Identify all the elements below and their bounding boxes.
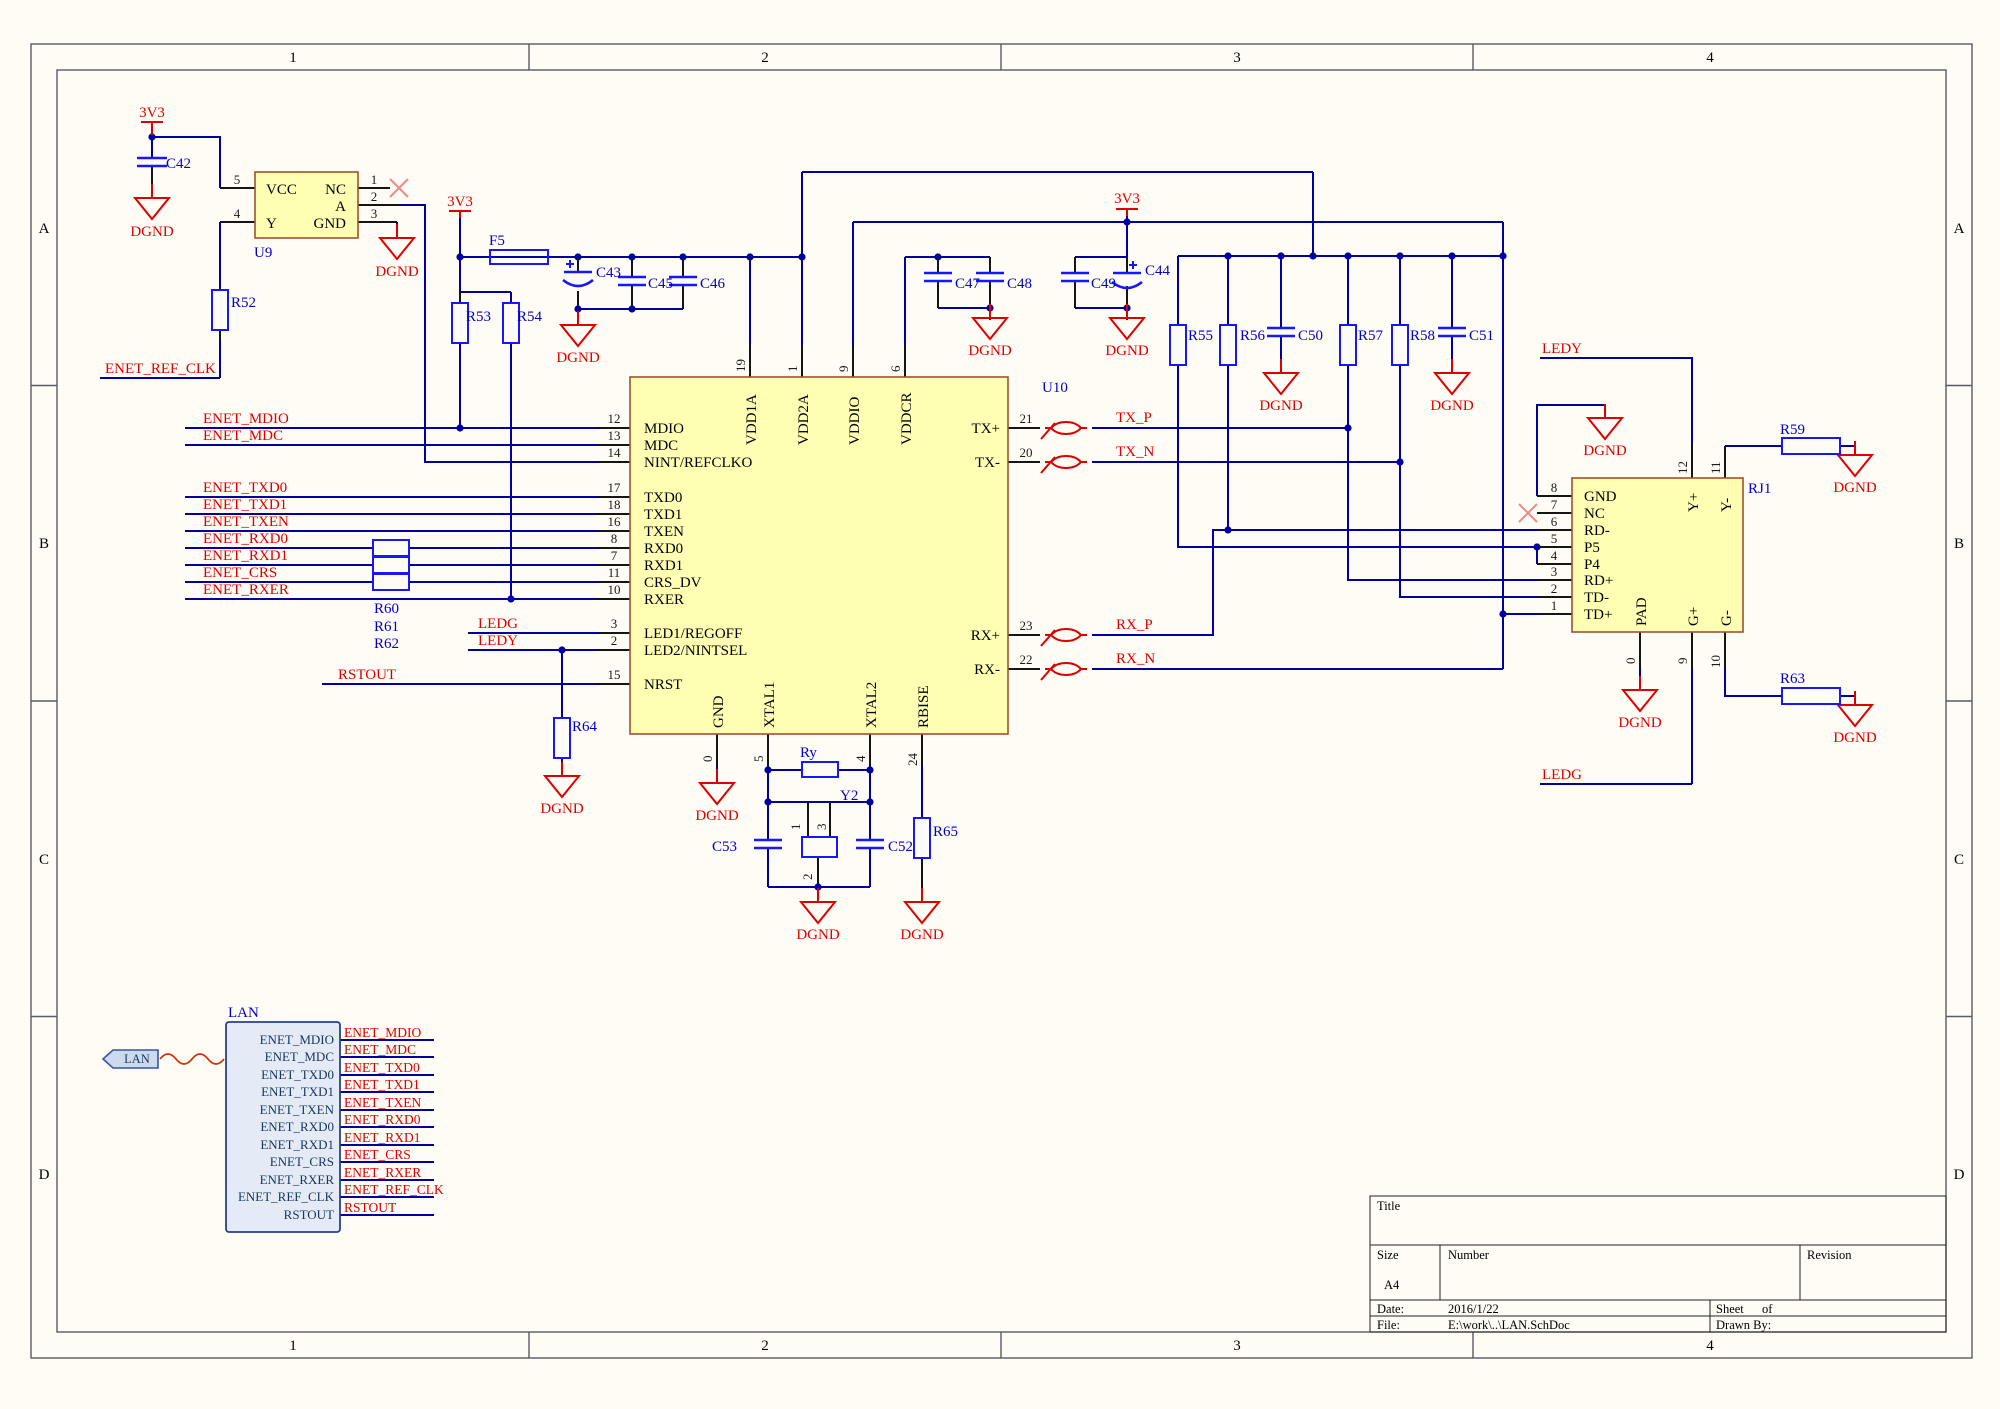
net-label-enet-rxd1: ENET_RXD1 bbox=[203, 548, 288, 564]
pin-name: TD- bbox=[1584, 590, 1609, 606]
schematic-sheet: 1 2 3 4 1 2 3 4 A B C D A B C D bbox=[0, 0, 2000, 1409]
pin-number: 12 bbox=[608, 411, 621, 426]
3v3-symbol bbox=[449, 211, 471, 218]
refdes: Y2 bbox=[840, 788, 858, 804]
port-label: LAN bbox=[124, 1052, 150, 1066]
pin-number: 0 bbox=[700, 756, 715, 763]
pin-name: VDDCR bbox=[899, 392, 915, 445]
pin-number: 1 bbox=[788, 824, 803, 831]
drawn-by-label: Drawn By: bbox=[1716, 1318, 1771, 1332]
zone-label: A bbox=[1954, 221, 1965, 237]
pin-name: TX+ bbox=[972, 421, 1000, 437]
net-label-ledg: LEDG bbox=[1542, 767, 1582, 783]
no-connect-icon bbox=[1519, 504, 1537, 522]
refdes: U10 bbox=[1042, 380, 1068, 396]
dgnd-symbol bbox=[973, 304, 1007, 339]
refdes: Ry bbox=[800, 745, 817, 761]
dgnd-symbol bbox=[905, 888, 939, 923]
refdes: C43 bbox=[596, 265, 621, 281]
harness-entry[interactable]: ENET_MDC bbox=[265, 1049, 334, 1064]
power-label-dgnd: DGND bbox=[1430, 398, 1473, 414]
zone-label: D bbox=[1954, 1167, 1965, 1183]
net-label: ENET_RXER bbox=[344, 1165, 421, 1180]
pin-number: 18 bbox=[608, 497, 621, 512]
size-label: Size bbox=[1377, 1248, 1399, 1262]
date-value: 2016/1/22 bbox=[1448, 1302, 1499, 1316]
zone-label: A bbox=[39, 221, 50, 237]
net-label-tx-n: TX_N bbox=[1116, 444, 1154, 460]
zone-label: 2 bbox=[761, 50, 769, 66]
pin-name: NINT/REFCLKO bbox=[644, 455, 753, 471]
net-label: ENET_RXD1 bbox=[344, 1130, 421, 1145]
harness-entry[interactable]: ENET_TXD0 bbox=[261, 1067, 334, 1082]
pin-name: RXD0 bbox=[644, 541, 683, 557]
net-label-ledy: LEDY bbox=[478, 633, 518, 649]
refdes: C45 bbox=[648, 276, 673, 292]
power-label-3v3: 3V3 bbox=[1114, 191, 1140, 207]
number-label: Number bbox=[1448, 1248, 1490, 1262]
pin-number: 10 bbox=[1708, 655, 1723, 668]
pin-number: 7 bbox=[1551, 497, 1558, 512]
pin-number: 5 bbox=[1551, 531, 1558, 546]
pin-name: PAD bbox=[1634, 597, 1650, 626]
pin-name: TXEN bbox=[644, 524, 684, 540]
pin-number: 20 bbox=[1020, 445, 1033, 460]
dgnd-symbol bbox=[1623, 676, 1657, 711]
diff-pair-icon bbox=[1041, 663, 1087, 680]
power-label-3v3: 3V3 bbox=[447, 194, 473, 210]
net-label: ENET_TXD1 bbox=[344, 1077, 420, 1092]
refdes: R63 bbox=[1780, 671, 1805, 687]
pin-name: G- bbox=[1719, 610, 1735, 626]
pin-number: 1 bbox=[371, 172, 378, 187]
harness-entry[interactable]: ENET_RXD0 bbox=[260, 1119, 334, 1134]
pin-name: NC bbox=[1584, 506, 1605, 522]
harness-connector bbox=[160, 1054, 224, 1064]
pin-name: GND bbox=[711, 695, 727, 728]
zone-label: D bbox=[39, 1167, 50, 1183]
pin-name: XTAL1 bbox=[762, 682, 778, 728]
refdes: C50 bbox=[1298, 328, 1323, 344]
pin-name: TXD1 bbox=[644, 507, 682, 523]
pin-number: 1 bbox=[785, 366, 800, 373]
pin-number: 11 bbox=[1708, 461, 1723, 474]
harness-entry[interactable]: ENET_REF_CLK bbox=[238, 1189, 335, 1204]
pin-name: G+ bbox=[1686, 607, 1702, 626]
pin-name: VDD1A bbox=[744, 394, 760, 445]
refdes: F5 bbox=[489, 233, 505, 249]
refdes: RJ1 bbox=[1748, 481, 1771, 497]
net-label-enet-txen: ENET_TXEN bbox=[203, 514, 289, 530]
refdes: C48 bbox=[1007, 276, 1032, 292]
pin-number: 22 bbox=[1020, 652, 1033, 667]
pin-number: 2 bbox=[611, 633, 618, 648]
pin-name: RX- bbox=[974, 662, 1000, 678]
dgnd-symbol bbox=[380, 224, 414, 259]
pin-number: 3 bbox=[611, 616, 618, 631]
pin-number: 3 bbox=[1551, 564, 1558, 579]
power-label-dgnd: DGND bbox=[540, 801, 583, 817]
power-label-dgnd: DGND bbox=[556, 350, 599, 366]
harness-entry[interactable]: ENET_TXEN bbox=[260, 1102, 335, 1117]
pin-name: RXER bbox=[644, 592, 684, 608]
harness-entry[interactable]: RSTOUT bbox=[284, 1207, 334, 1222]
refdes: R52 bbox=[231, 295, 256, 311]
net-label-tx-p: TX_P bbox=[1116, 410, 1152, 426]
pin-name: TX- bbox=[975, 455, 1000, 471]
pin-number: 10 bbox=[608, 582, 621, 597]
pin-number: 4 bbox=[853, 755, 868, 762]
refdes: C52 bbox=[888, 839, 913, 855]
net-label-rx-p: RX_P bbox=[1116, 617, 1153, 633]
pin-name: VDD2A bbox=[796, 394, 812, 445]
title-label: Title bbox=[1377, 1199, 1401, 1213]
zone-label: 3 bbox=[1233, 50, 1241, 66]
pin-number: 17 bbox=[608, 480, 622, 495]
size-value: A4 bbox=[1384, 1278, 1400, 1292]
dgnd-symbol bbox=[561, 311, 595, 346]
power-label-dgnd: DGND bbox=[1105, 343, 1148, 359]
zone-label: C bbox=[39, 852, 49, 868]
pin-number: 8 bbox=[611, 531, 618, 546]
diff-pair-icon bbox=[1041, 422, 1087, 439]
harness-entry[interactable]: ENET_RXER bbox=[260, 1172, 335, 1187]
net-label: ENET_TXD0 bbox=[344, 1060, 420, 1075]
pin-name: A bbox=[335, 199, 346, 215]
refdes: R53 bbox=[466, 309, 491, 325]
zone-label: 3 bbox=[1233, 1338, 1241, 1354]
refdes: R57 bbox=[1358, 328, 1384, 344]
pin-number: 15 bbox=[608, 667, 621, 682]
no-connect-icon bbox=[390, 179, 408, 197]
pin-number: 14 bbox=[608, 445, 622, 460]
date-label: Date: bbox=[1377, 1302, 1404, 1316]
power-label-3v3: 3V3 bbox=[139, 105, 165, 121]
3v3-symbol bbox=[1116, 209, 1138, 216]
net-label: ENET_REF_CLK bbox=[344, 1182, 444, 1197]
dgnd-symbol bbox=[1435, 359, 1469, 394]
pin-name: VDDIO bbox=[847, 397, 863, 445]
pin-number: 21 bbox=[1020, 411, 1033, 426]
power-label-dgnd: DGND bbox=[1583, 443, 1626, 459]
pin-name: RX+ bbox=[971, 628, 1000, 644]
pin-number: 19 bbox=[733, 359, 748, 372]
pin-number: 5 bbox=[234, 172, 241, 187]
pin-number: 23 bbox=[1020, 618, 1033, 633]
pin-number: 7 bbox=[611, 548, 618, 563]
3v3-symbol bbox=[141, 122, 163, 135]
zone-label: 4 bbox=[1706, 50, 1714, 66]
dgnd-symbol bbox=[135, 184, 169, 219]
pin-number: 0 bbox=[1623, 658, 1638, 665]
net-label-rx-n: RX_N bbox=[1116, 651, 1155, 667]
pin-number: 11 bbox=[608, 565, 621, 580]
dgnd-symbol bbox=[700, 769, 734, 804]
harness-entry[interactable]: ENET_RXD1 bbox=[260, 1137, 334, 1152]
refdes: R60 bbox=[374, 601, 399, 617]
component-u9[interactable]: U9 VCC NC A Y GND 5 4 1 2 3 bbox=[234, 172, 378, 261]
power-label-dgnd: DGND bbox=[130, 224, 173, 240]
pin-name: MDIO bbox=[644, 421, 684, 437]
refdes: C51 bbox=[1469, 328, 1494, 344]
pin-number: 3 bbox=[371, 206, 378, 221]
diff-pair-icon bbox=[1041, 629, 1087, 646]
pin-name: CRS_DV bbox=[644, 575, 702, 591]
dgnd-symbol bbox=[1588, 404, 1622, 439]
zone-label: 1 bbox=[289, 1338, 297, 1354]
harness-entry[interactable]: ENET_TXD1 bbox=[261, 1084, 334, 1099]
net-label-enet-mdc: ENET_MDC bbox=[203, 428, 283, 444]
dgnd-symbol bbox=[1110, 304, 1144, 339]
power-label-dgnd: DGND bbox=[695, 808, 738, 824]
refdes: R61 bbox=[374, 619, 399, 635]
title-block: Title Size A4 Number Revision Date: 2016… bbox=[1370, 1196, 1946, 1332]
pin-number: 1 bbox=[1551, 598, 1558, 613]
pin-name: Y bbox=[266, 216, 277, 232]
sheet-label: Sheet bbox=[1716, 1302, 1744, 1316]
refdes: C46 bbox=[700, 276, 726, 292]
pin-name: GND bbox=[1584, 489, 1617, 505]
net-label: RSTOUT bbox=[344, 1200, 397, 1215]
net-label-rstout: RSTOUT bbox=[338, 667, 396, 683]
power-label-dgnd: DGND bbox=[1833, 480, 1876, 496]
pin-name: GND bbox=[314, 216, 347, 232]
harness-entry[interactable]: ENET_MDIO bbox=[260, 1032, 334, 1047]
net-label: ENET_CRS bbox=[344, 1147, 411, 1162]
pin-name: VCC bbox=[266, 182, 297, 198]
pin-number: 6 bbox=[888, 365, 903, 372]
power-label-dgnd: DGND bbox=[1833, 730, 1876, 746]
pin-name: TD+ bbox=[1584, 607, 1612, 623]
pin-name: MDC bbox=[644, 438, 678, 454]
dgnd-symbol bbox=[545, 762, 579, 797]
pin-number: 9 bbox=[1675, 658, 1690, 665]
file-label: File: bbox=[1377, 1318, 1400, 1332]
pin-number: 16 bbox=[608, 514, 622, 529]
file-value: E:\work\..\LAN.SchDoc bbox=[1448, 1318, 1570, 1332]
pin-number: 3 bbox=[814, 824, 829, 831]
net-label-ledg: LEDG bbox=[478, 616, 518, 632]
pin-name: RBISE bbox=[916, 685, 932, 728]
net-label-enet-rxer: ENET_RXER bbox=[203, 582, 289, 598]
component-rj1[interactable]: RJ1 GND NC RD- P5 P4 RD+ TD- TD+ 8 7 6 5… bbox=[1551, 461, 1772, 668]
net-label-enet-txd0: ENET_TXD0 bbox=[203, 480, 287, 496]
net-label-enet-ref-clk: ENET_REF_CLK bbox=[105, 361, 216, 377]
net-label-enet-txd1: ENET_TXD1 bbox=[203, 497, 287, 513]
pin-name: Y- bbox=[1719, 498, 1735, 512]
component-u10[interactable]: U10 MDIO MDC NINT/REFCLKO TXD0 TXD1 TXEN… bbox=[608, 359, 1068, 766]
pin-name: RXD1 bbox=[644, 558, 683, 574]
net-label-enet-rxd0: ENET_RXD0 bbox=[203, 531, 288, 547]
pin-name: RD- bbox=[1584, 523, 1610, 539]
zone-label: B bbox=[39, 536, 49, 552]
zone-label: 1 bbox=[289, 50, 297, 66]
refdes: C53 bbox=[712, 839, 737, 855]
of-label: of bbox=[1762, 1302, 1773, 1316]
pin-number: 4 bbox=[1551, 548, 1558, 563]
net-label: ENET_MDIO bbox=[344, 1025, 421, 1040]
pin-name: RD+ bbox=[1584, 573, 1613, 589]
refdes: C42 bbox=[166, 156, 191, 172]
pin-number: 2 bbox=[800, 874, 815, 881]
harness-title: LAN bbox=[228, 1005, 259, 1021]
net-label-enet-mdio: ENET_MDIO bbox=[203, 411, 289, 427]
power-label-dgnd: DGND bbox=[968, 343, 1011, 359]
pin-name: NC bbox=[325, 182, 346, 198]
pin-name: P5 bbox=[1584, 540, 1600, 556]
pin-number: 5 bbox=[751, 756, 766, 763]
net-label-ledy: LEDY bbox=[1542, 341, 1582, 357]
refdes: R58 bbox=[1410, 328, 1435, 344]
zone-label: 2 bbox=[761, 1338, 769, 1354]
pin-number: 12 bbox=[1675, 461, 1690, 474]
pin-number: 4 bbox=[234, 206, 241, 221]
net-label: ENET_RXD0 bbox=[344, 1112, 421, 1127]
refdes: R65 bbox=[933, 824, 958, 840]
zone-label: 4 bbox=[1706, 1338, 1714, 1354]
pin-name: Y+ bbox=[1686, 493, 1702, 512]
pin-number: 2 bbox=[371, 189, 378, 204]
refdes: R62 bbox=[374, 636, 399, 652]
power-label-dgnd: DGND bbox=[1259, 398, 1302, 414]
pin-number: 2 bbox=[1551, 581, 1558, 596]
pin-name: LED1/REGOFF bbox=[644, 626, 742, 642]
refdes: R55 bbox=[1188, 328, 1213, 344]
diff-pair-icon bbox=[1041, 456, 1087, 473]
power-label-dgnd: DGND bbox=[1618, 715, 1661, 731]
pin-name: XTAL2 bbox=[864, 682, 880, 728]
pin-number: 8 bbox=[1551, 480, 1558, 495]
pin-number: 9 bbox=[836, 366, 851, 373]
net-label: ENET_MDC bbox=[344, 1042, 416, 1057]
zone-label: B bbox=[1954, 536, 1964, 552]
pin-name: P4 bbox=[1584, 557, 1600, 573]
refdes: C49 bbox=[1091, 276, 1116, 292]
power-label-dgnd: DGND bbox=[375, 264, 418, 280]
refdes: R54 bbox=[517, 309, 543, 325]
revision-label: Revision bbox=[1807, 1248, 1852, 1262]
dgnd-symbol bbox=[801, 888, 835, 923]
refdes: C47 bbox=[955, 276, 981, 292]
power-label-dgnd: DGND bbox=[796, 927, 839, 943]
harness-entry[interactable]: ENET_CRS bbox=[270, 1154, 334, 1169]
pin-number: 6 bbox=[1551, 514, 1558, 529]
refdes: C44 bbox=[1145, 263, 1171, 279]
pin-name: LED2/NINTSEL bbox=[644, 643, 747, 659]
refdes: R64 bbox=[572, 719, 598, 735]
dgnd-symbol bbox=[1264, 359, 1298, 394]
pin-name: NRST bbox=[644, 677, 682, 693]
refdes: R56 bbox=[1240, 328, 1266, 344]
zone-label: C bbox=[1954, 852, 1964, 868]
net-label-enet-crs: ENET_CRS bbox=[203, 565, 277, 581]
pin-number: 24 bbox=[905, 753, 920, 767]
net-label: ENET_TXEN bbox=[344, 1095, 421, 1110]
refdes: R59 bbox=[1780, 422, 1805, 438]
pin-name: TXD0 bbox=[644, 490, 682, 506]
refdes: U9 bbox=[254, 245, 272, 261]
power-label-dgnd: DGND bbox=[900, 927, 943, 943]
pin-number: 13 bbox=[608, 428, 621, 443]
